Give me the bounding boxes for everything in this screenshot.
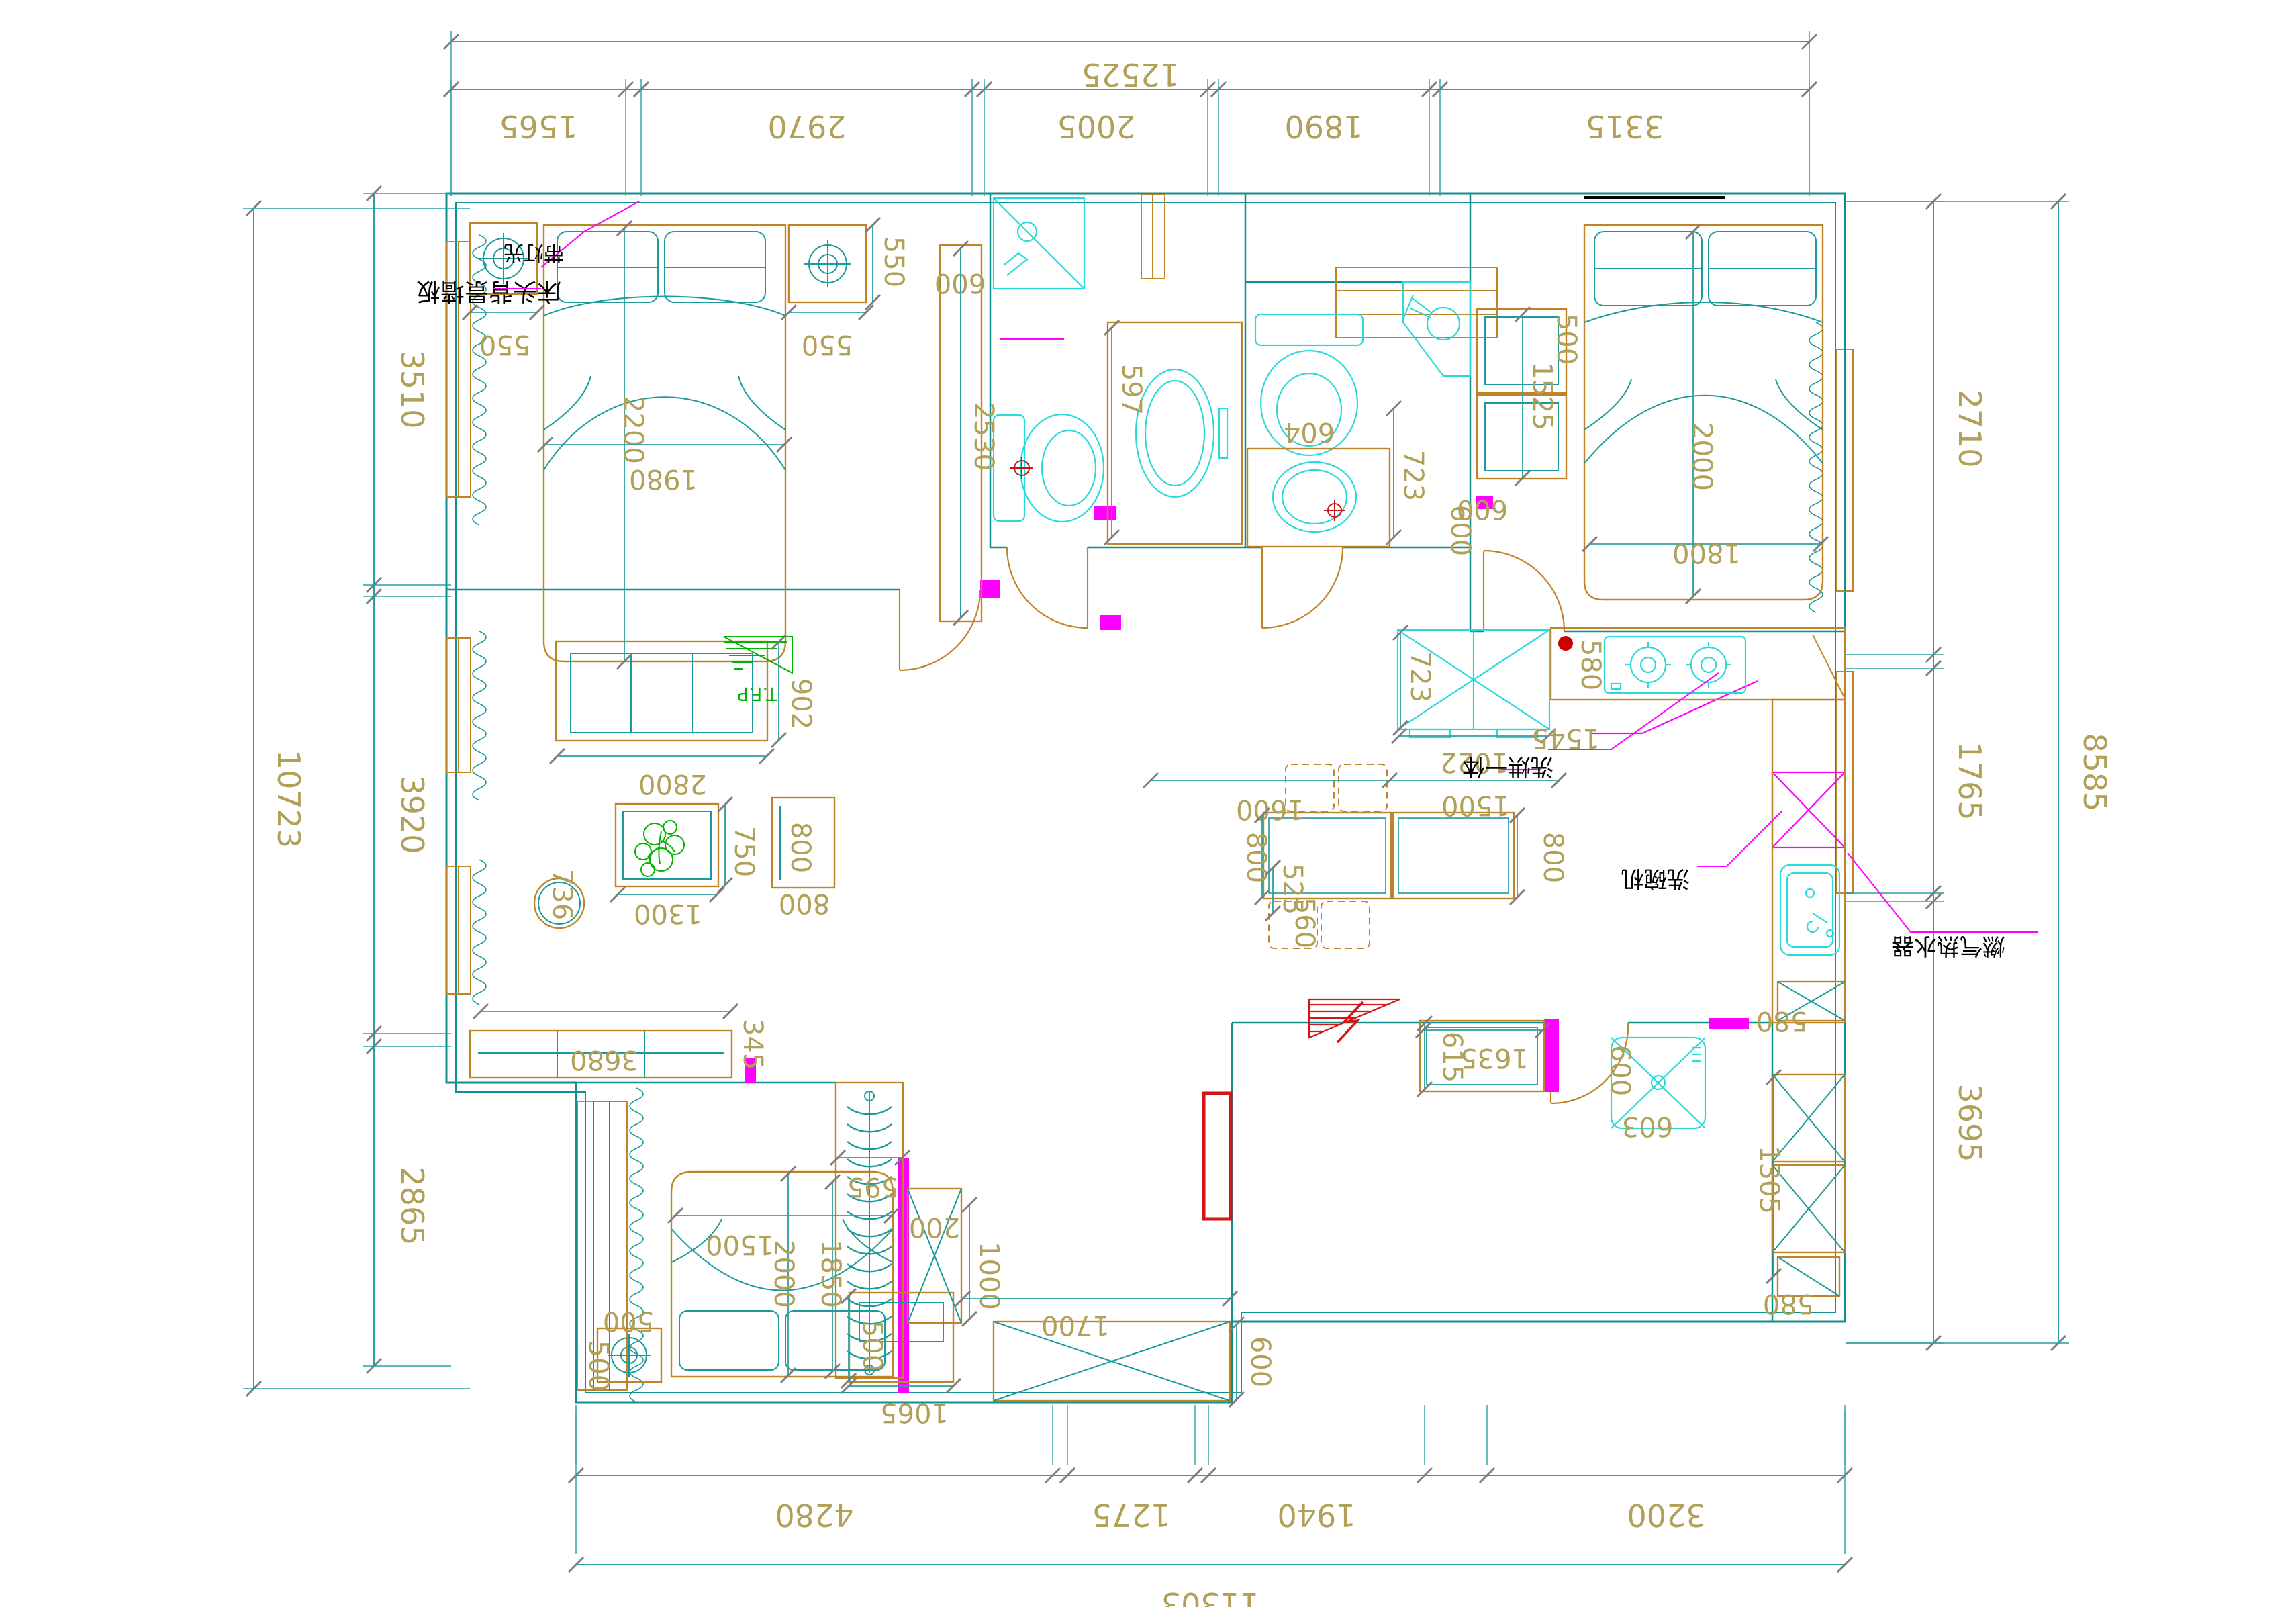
sofa — [556, 641, 767, 741]
floor-plan-canvas: 1252515652970200518903315107233510392028… — [0, 0, 2296, 1607]
dimension-label: 600 — [1245, 1336, 1276, 1387]
dimension-label: 2005 — [1057, 108, 1135, 144]
dining-table — [1393, 813, 1514, 899]
dimension-label: 1065 — [880, 1397, 949, 1428]
dimension-label: 3695 — [1952, 1083, 1988, 1162]
dimension-label: 500 — [1551, 314, 1582, 365]
dimension-label: 10723 — [271, 750, 307, 848]
dimension-label: 597 — [1116, 364, 1147, 415]
dimension-label: 4280 — [775, 1497, 853, 1533]
dimension-label: 3200 — [1627, 1497, 1705, 1533]
dimension-label: 2530 — [968, 402, 999, 471]
dimension-label: 3315 — [1585, 108, 1664, 144]
curtain-icon — [473, 631, 486, 800]
dimension-label: 2710 — [1952, 389, 1988, 467]
dimension-label: 723 — [1398, 450, 1429, 501]
dimension-label: 1000 — [973, 1242, 1004, 1310]
dimension-label: 345 — [737, 1019, 768, 1070]
sink-icon — [1136, 369, 1214, 497]
dimension-label: 500 — [857, 1320, 888, 1371]
dimension-label: 550 — [802, 329, 853, 360]
dimension-label: 560 — [1289, 897, 1320, 948]
toilet-icon — [994, 414, 1104, 522]
dimension-label: 600 — [1605, 1045, 1635, 1096]
dimension-label: 3920 — [394, 775, 430, 854]
red-highlight-wall — [1204, 1093, 1231, 1219]
dimension-label: 750 — [728, 826, 759, 877]
dimension-label: 1765 — [1952, 741, 1988, 820]
magenta-lines — [1000, 339, 1845, 847]
dimension-label: 550 — [479, 329, 530, 360]
dimension-label: 200 — [909, 1211, 960, 1242]
dimension-label: 800 — [1537, 832, 1568, 883]
kitchen-sink-icon — [1780, 865, 1839, 955]
dishwasher — [1772, 772, 1845, 847]
dimension-label: 2000 — [768, 1240, 799, 1308]
dimension-label: 600 — [935, 267, 986, 298]
dimension-label: 1800 — [1672, 537, 1741, 568]
annotation-label: 洗碗机 — [1621, 865, 1690, 892]
kitchen — [1398, 628, 1845, 1023]
vanity-counter — [1108, 322, 1242, 544]
chair — [1321, 901, 1370, 948]
dimension-label: 1565 — [499, 108, 577, 144]
dimension-label: 1635 — [1460, 1042, 1529, 1073]
dimension-label: 603 — [1622, 1111, 1673, 1142]
dimension-label: 2865 — [394, 1166, 430, 1245]
annotation-label: 带灯光 — [504, 240, 564, 264]
red-items — [1204, 999, 1400, 1219]
shower-head-icon — [1004, 253, 1028, 275]
dimension-label: 580 — [1756, 1005, 1807, 1036]
coffee-table — [616, 804, 718, 886]
dimension-label: 2000 — [1686, 422, 1717, 491]
annotation-label: 燃气热水器 — [1891, 932, 2005, 959]
floor-plan-page: 1252515652970200518903315107233510392028… — [0, 0, 2296, 1607]
dimension-label: 1500 — [1441, 790, 1510, 821]
generated-annotations: 1252515652970200518903315107233510392028… — [243, 31, 2113, 1607]
dimension-label: 1600 — [1236, 794, 1304, 825]
lamp-icon — [804, 240, 851, 287]
plant-icon — [635, 821, 684, 876]
m-marker — [1558, 636, 1573, 651]
dimension-label: 500 — [583, 1340, 614, 1391]
dimension-label: 800 — [785, 822, 816, 873]
sink-icon — [1273, 462, 1356, 532]
curtain-icon — [1809, 322, 1823, 612]
dimension-label: 1525 — [1527, 362, 1558, 430]
annotation-label: T.F.P — [737, 683, 778, 705]
dimension-label: 1980 — [629, 463, 698, 494]
dimension-label: 500 — [603, 1305, 654, 1336]
dimension-label: 902 — [785, 678, 816, 729]
dimension-label: 1890 — [1284, 108, 1363, 144]
dimension-label: 1940 — [1277, 1497, 1355, 1533]
gas-hob-icon — [1605, 637, 1745, 693]
dimension-label: 8585 — [2076, 733, 2113, 811]
dimension-label: 1500 — [706, 1229, 774, 1260]
dimension-label: 11303 — [1161, 1586, 1259, 1607]
dimension-label: 1300 — [634, 898, 702, 929]
dimension-label: 12525 — [1082, 56, 1180, 93]
annotation-label: 床头背景墙板 — [416, 277, 561, 305]
dimension-label: 1700 — [1041, 1310, 1110, 1340]
dimension-label: 550 — [878, 236, 909, 287]
interior-walls — [446, 193, 1845, 1322]
dimension-label: 1850 — [815, 1240, 846, 1308]
dimension-label: 580 — [1763, 1288, 1814, 1319]
dimension-label: 2970 — [767, 108, 846, 144]
right-counter — [1772, 700, 1845, 1023]
dimension-label: 595 — [847, 1171, 898, 1202]
dimension-label: 3680 — [570, 1044, 638, 1075]
dimension-label: 1275 — [1092, 1497, 1170, 1533]
dimension-label: 736 — [546, 869, 577, 920]
dimension-label: 2200 — [618, 396, 649, 464]
chair — [1339, 764, 1387, 811]
dimension-label: 723 — [1404, 651, 1435, 702]
pillow — [679, 1311, 779, 1370]
dimension-label: 1305 — [1754, 1146, 1784, 1214]
magenta-wall-highlights — [745, 496, 1749, 1393]
dimension-label: 3510 — [394, 350, 430, 428]
dimension-label: 2800 — [638, 768, 707, 799]
curtain-icon — [473, 860, 486, 1005]
dimension-label: 604 — [1284, 416, 1335, 447]
bathroom-2 — [1247, 282, 1470, 547]
electric-panel-icon — [1309, 999, 1400, 1042]
dimension-label: 800 — [779, 888, 830, 919]
dimension-label: 600 — [1457, 494, 1508, 524]
annotation-label: 洗烘一体 — [1462, 753, 1553, 780]
dimension-label: 800 — [1241, 832, 1272, 883]
dimension-label: 580 — [1575, 639, 1606, 690]
